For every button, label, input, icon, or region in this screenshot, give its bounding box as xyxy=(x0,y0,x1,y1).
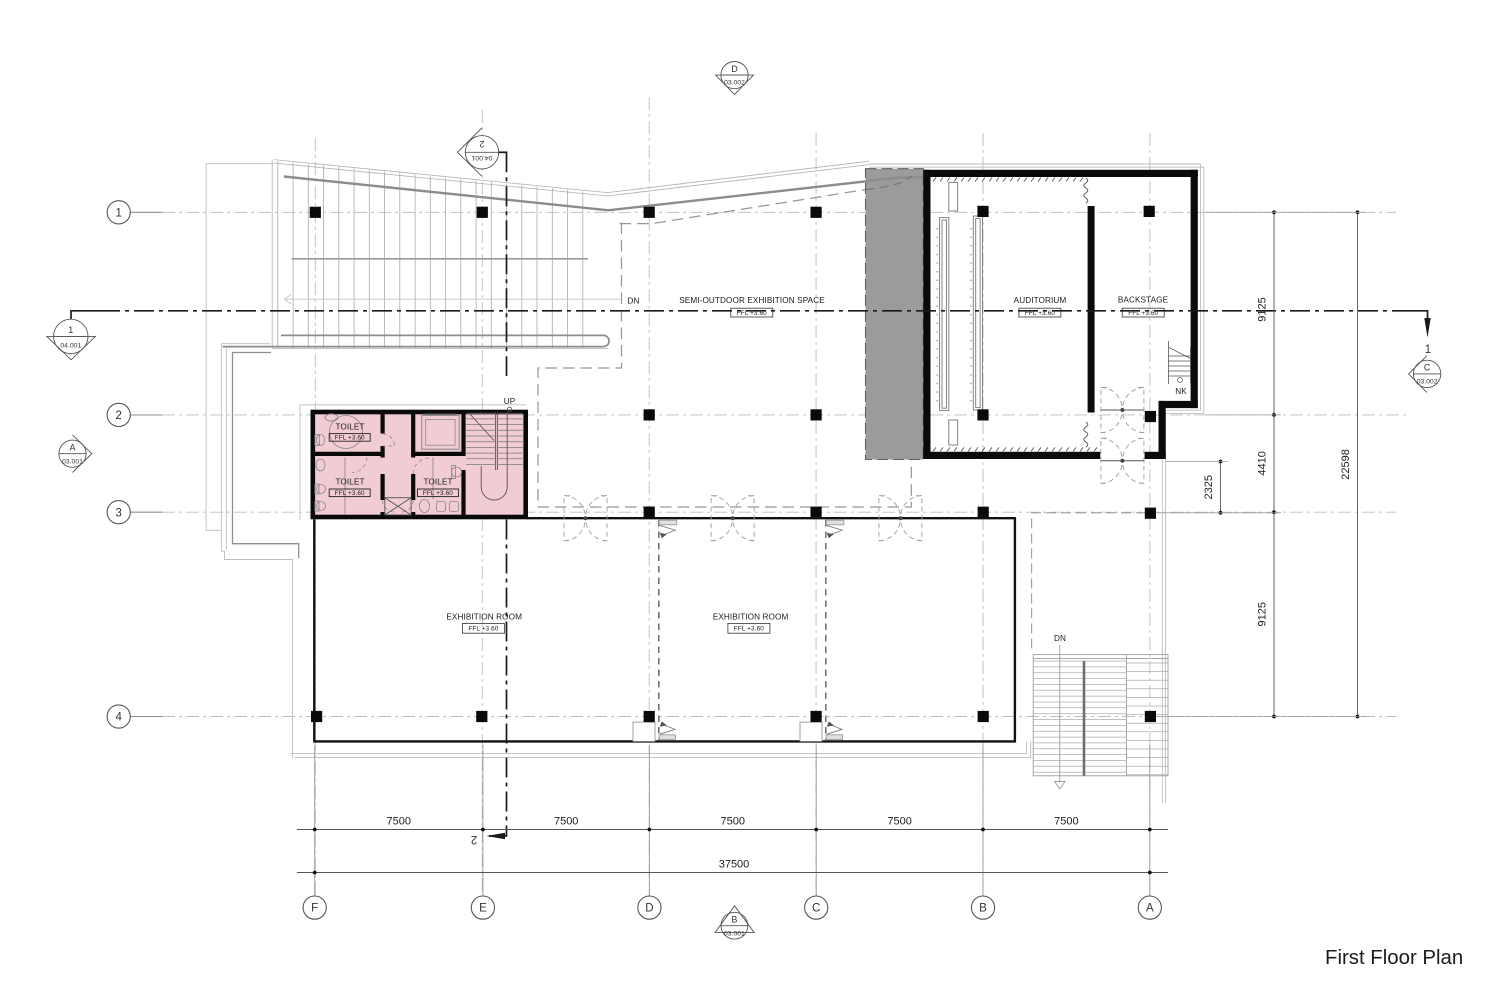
svg-text:BACKSTAGE: BACKSTAGE xyxy=(1118,295,1169,304)
svg-text:DN: DN xyxy=(627,296,639,305)
svg-text:FFL +3.60: FFL +3.60 xyxy=(335,490,365,497)
svg-text:9125: 9125 xyxy=(1257,297,1269,321)
svg-text:EXHIBITION ROOM: EXHIBITION ROOM xyxy=(713,613,789,622)
svg-text:3: 3 xyxy=(115,507,121,519)
svg-text:FFL +3.60: FFL +3.60 xyxy=(423,490,453,497)
svg-text:SEMI-OUTDOOR EXHIBITION SPACE: SEMI-OUTDOOR EXHIBITION SPACE xyxy=(679,296,825,305)
svg-text:NK: NK xyxy=(1175,387,1187,396)
svg-text:03.002: 03.002 xyxy=(1417,379,1438,386)
svg-text:03.001: 03.001 xyxy=(724,931,745,938)
svg-text:2: 2 xyxy=(115,410,121,422)
svg-text:4: 4 xyxy=(115,712,122,724)
svg-text:FFL +3.60: FFL +3.60 xyxy=(335,435,365,442)
svg-text:TOILET: TOILET xyxy=(423,478,452,487)
svg-text:04.001: 04.001 xyxy=(471,154,492,161)
svg-text:TOILET: TOILET xyxy=(335,478,364,487)
svg-text:UP: UP xyxy=(504,397,516,406)
svg-text:AUDITORIUM: AUDITORIUM xyxy=(1014,296,1067,305)
svg-text:03.002: 03.002 xyxy=(724,80,745,87)
svg-text:C: C xyxy=(812,903,820,915)
svg-text:7500: 7500 xyxy=(1054,816,1078,828)
svg-text:2: 2 xyxy=(479,139,484,149)
svg-text:D: D xyxy=(645,903,653,915)
svg-text:04.001: 04.001 xyxy=(60,342,81,349)
svg-text:First Floor Plan: First Floor Plan xyxy=(1325,947,1463,969)
svg-text:37500: 37500 xyxy=(719,858,750,870)
svg-text:7500: 7500 xyxy=(387,816,411,828)
svg-text:B: B xyxy=(979,903,987,915)
svg-text:1: 1 xyxy=(1425,344,1431,356)
svg-text:1: 1 xyxy=(115,207,121,219)
svg-text:1: 1 xyxy=(68,325,73,335)
svg-text:E: E xyxy=(479,903,487,915)
svg-text:D: D xyxy=(731,64,738,74)
svg-text:03.001: 03.001 xyxy=(62,458,83,465)
svg-text:DN: DN xyxy=(1054,634,1066,643)
svg-text:7500: 7500 xyxy=(554,816,578,828)
svg-text:9125: 9125 xyxy=(1257,602,1269,626)
svg-text:FFL +3.60: FFL +3.60 xyxy=(468,626,498,633)
svg-text:7500: 7500 xyxy=(721,816,745,828)
svg-text:TOILET: TOILET xyxy=(335,422,364,431)
svg-text:2325: 2325 xyxy=(1203,475,1215,499)
svg-text:FFL +3.60: FFL +3.60 xyxy=(734,626,764,633)
svg-text:A: A xyxy=(69,442,75,452)
svg-text:22598: 22598 xyxy=(1340,449,1352,480)
svg-text:EXHIBITION ROOM: EXHIBITION ROOM xyxy=(446,613,522,622)
svg-text:A: A xyxy=(1146,903,1154,915)
svg-text:7500: 7500 xyxy=(887,816,911,828)
svg-text:B: B xyxy=(731,915,737,925)
svg-text:C: C xyxy=(1424,363,1431,373)
svg-text:2: 2 xyxy=(471,833,477,845)
svg-text:4410: 4410 xyxy=(1257,451,1269,475)
svg-text:F: F xyxy=(311,903,318,915)
